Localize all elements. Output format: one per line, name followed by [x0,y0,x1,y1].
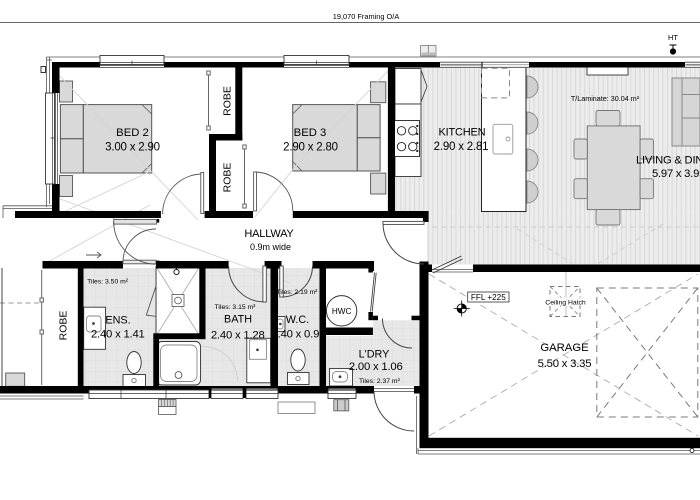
svg-text:ROBE: ROBE [221,163,233,193]
svg-text:BATH: BATH [224,313,252,325]
svg-text:5.50 x 3.35: 5.50 x 3.35 [538,358,592,370]
svg-text:Ceiling Hatch: Ceiling Hatch [545,299,586,306]
svg-text:Tiles: 2.37 m²: Tiles: 2.37 m² [359,378,401,385]
svg-text:Tiles: 2.19 m²: Tiles: 2.19 m² [277,289,319,296]
svg-text:W.C.: W.C. [286,314,309,326]
svg-text:HT: HT [668,33,678,42]
svg-text:ENS.: ENS. [105,314,130,326]
svg-text:Tiles: 3.15 m²: Tiles: 3.15 m² [215,304,257,311]
svg-text:L'DRY: L'DRY [359,348,390,360]
svg-text:T/Laminate: 30.04 m²: T/Laminate: 30.04 m² [571,94,640,103]
svg-text:ROBE: ROBE [57,311,69,341]
svg-text:Tiles: 3.50 m²: Tiles: 3.50 m² [87,278,129,285]
svg-text:BED 2: BED 2 [116,127,149,139]
svg-text:5.97 x 3.95: 5.97 x 3.95 [652,168,700,180]
svg-text:LIVING & DINING: LIVING & DINING [636,155,700,167]
svg-text:2.40 x 1.28: 2.40 x 1.28 [211,329,265,341]
svg-text:ROBE: ROBE [221,86,233,116]
svg-text:2.40 x 0.90: 2.40 x 0.90 [272,328,326,340]
svg-text:KITCHEN: KITCHEN [439,127,486,139]
svg-text:FFL +225: FFL +225 [471,293,506,302]
svg-text:2.90 x 2.80: 2.90 x 2.80 [283,141,338,153]
svg-text:2.40 x 1.41: 2.40 x 1.41 [91,328,145,340]
svg-text:HWC: HWC [332,307,352,316]
svg-text:HALLWAY: HALLWAY [244,228,294,240]
svg-text:3.00 x 2.90: 3.00 x 2.90 [105,141,160,153]
svg-text:BED 3: BED 3 [294,127,327,139]
svg-text:2.00 x 1.06: 2.00 x 1.06 [349,361,403,373]
svg-text:0.9m wide: 0.9m wide [250,242,291,252]
svg-text:GARAGE: GARAGE [540,342,589,354]
svg-text:19,070 Framing O/A: 19,070 Framing O/A [333,12,400,21]
svg-text:2.90 x 2.81: 2.90 x 2.81 [434,141,489,153]
